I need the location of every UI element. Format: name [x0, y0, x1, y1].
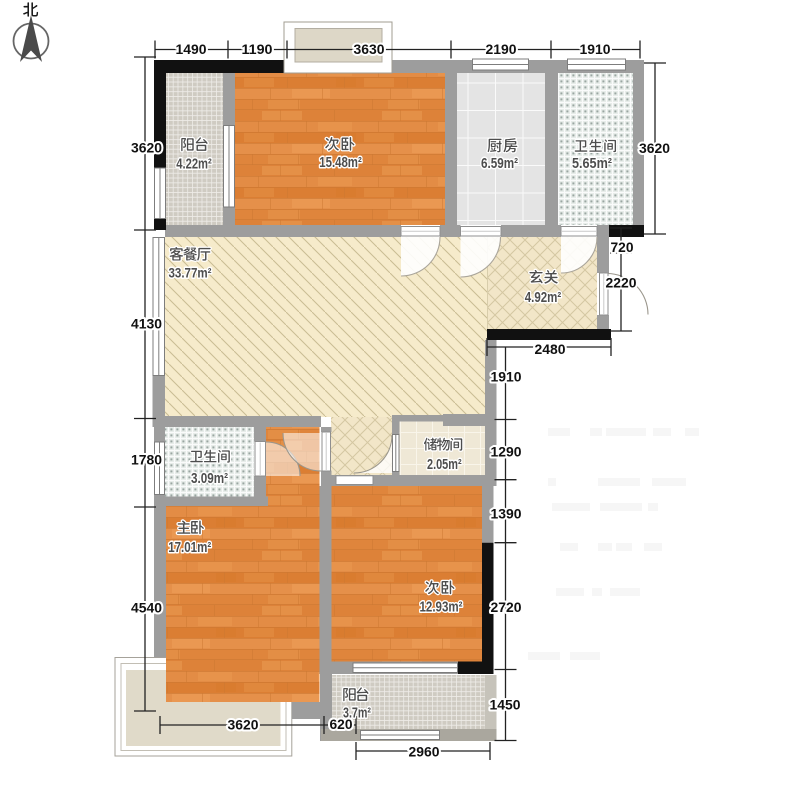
svg-text:2960: 2960 [409, 745, 440, 760]
svg-text:1780: 1780 [131, 453, 162, 468]
svg-text:12.93m²: 12.93m² [420, 600, 463, 616]
svg-text:1390: 1390 [491, 507, 522, 522]
svg-text:3630: 3630 [354, 42, 385, 57]
svg-text:3620: 3620 [228, 718, 259, 733]
svg-text:3620: 3620 [639, 141, 670, 156]
svg-text:4.92m²: 4.92m² [525, 290, 562, 306]
svg-text:1910: 1910 [580, 42, 611, 57]
svg-text:1450: 1450 [490, 698, 521, 713]
svg-text:1190: 1190 [242, 42, 273, 57]
svg-text:15.48m²: 15.48m² [319, 155, 362, 171]
svg-text:1490: 1490 [176, 42, 207, 57]
svg-text:3620: 3620 [131, 141, 162, 156]
svg-text:2480: 2480 [535, 342, 566, 357]
svg-text:3.09m²: 3.09m² [191, 471, 228, 487]
svg-text:3.7m²: 3.7m² [343, 706, 371, 722]
svg-text:1910: 1910 [491, 370, 522, 385]
svg-text:2.05m²: 2.05m² [427, 457, 462, 473]
svg-text:4540: 4540 [131, 601, 162, 616]
svg-text:2220: 2220 [606, 276, 637, 291]
svg-text:4.22m²: 4.22m² [176, 157, 212, 173]
svg-text:33.77m²: 33.77m² [169, 266, 212, 281]
svg-text:17.01m²: 17.01m² [168, 540, 211, 556]
svg-text:2190: 2190 [486, 42, 517, 57]
svg-text:1290: 1290 [491, 445, 522, 460]
svg-text:5.65m²: 5.65m² [572, 156, 612, 172]
svg-text:4130: 4130 [131, 317, 162, 332]
svg-text:2720: 2720 [491, 600, 522, 615]
svg-text:720: 720 [611, 240, 634, 255]
svg-text:6.59m²: 6.59m² [481, 156, 518, 172]
